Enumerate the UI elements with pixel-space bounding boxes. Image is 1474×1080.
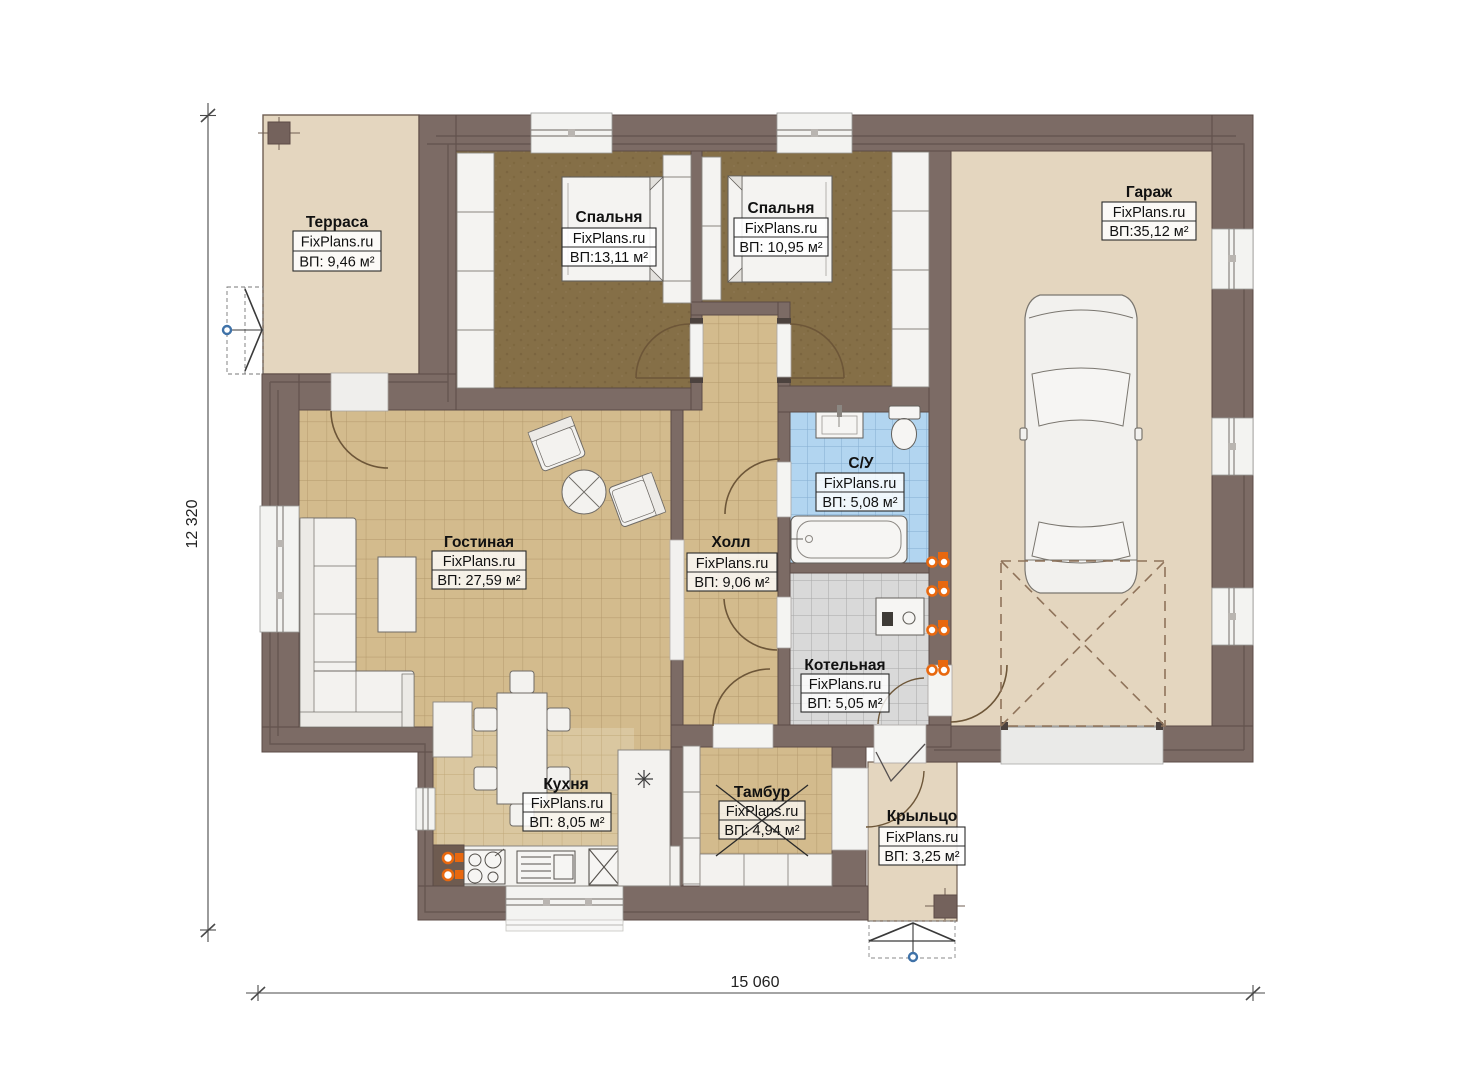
svg-text:Кухня: Кухня (543, 776, 588, 793)
svg-text:ВП: 27,59 м²: ВП: 27,59 м² (437, 573, 520, 589)
svg-text:FixPlans.ru: FixPlans.ru (301, 235, 374, 251)
svg-text:12 320: 12 320 (184, 499, 201, 548)
svg-text:FixPlans.ru: FixPlans.ru (809, 677, 882, 693)
svg-text:15 060: 15 060 (731, 974, 780, 991)
svg-text:Терраса: Терраса (306, 214, 369, 231)
svg-text:FixPlans.ru: FixPlans.ru (1113, 205, 1186, 221)
svg-text:FixPlans.ru: FixPlans.ru (696, 556, 769, 572)
svg-text:С/У: С/У (848, 455, 874, 472)
svg-text:Котельная: Котельная (804, 657, 885, 674)
svg-text:Спальня: Спальня (748, 200, 815, 217)
svg-text:Тамбур: Тамбур (734, 784, 790, 801)
svg-text:Холл: Холл (712, 534, 751, 551)
svg-text:ВП: 5,08 м²: ВП: 5,08 м² (822, 495, 897, 511)
svg-text:FixPlans.ru: FixPlans.ru (726, 804, 799, 820)
svg-text:FixPlans.ru: FixPlans.ru (745, 221, 818, 237)
svg-text:Гараж: Гараж (1126, 184, 1173, 201)
svg-text:Крыльцо: Крыльцо (887, 808, 958, 825)
svg-text:ВП: 9,46 м²: ВП: 9,46 м² (299, 255, 374, 271)
svg-text:FixPlans.ru: FixPlans.ru (573, 231, 646, 247)
svg-text:ВП:13,11 м²: ВП:13,11 м² (570, 250, 648, 266)
svg-text:Спальня: Спальня (576, 209, 643, 226)
svg-text:Гостиная: Гостиная (444, 534, 514, 551)
svg-text:ВП: 3,25 м²: ВП: 3,25 м² (884, 849, 959, 865)
svg-text:FixPlans.ru: FixPlans.ru (886, 830, 959, 846)
svg-text:ВП: 4,94 м²: ВП: 4,94 м² (724, 823, 799, 839)
svg-text:FixPlans.ru: FixPlans.ru (824, 476, 897, 492)
svg-text:ВП:35,12 м²: ВП:35,12 м² (1109, 224, 1188, 240)
svg-text:ВП: 5,05 м²: ВП: 5,05 м² (807, 696, 882, 712)
svg-text:ВП: 8,05 м²: ВП: 8,05 м² (529, 815, 604, 831)
svg-text:FixPlans.ru: FixPlans.ru (531, 796, 604, 812)
svg-text:FixPlans.ru: FixPlans.ru (443, 554, 516, 570)
svg-text:ВП: 9,06 м²: ВП: 9,06 м² (694, 575, 769, 591)
svg-text:ВП: 10,95 м²: ВП: 10,95 м² (739, 240, 822, 256)
